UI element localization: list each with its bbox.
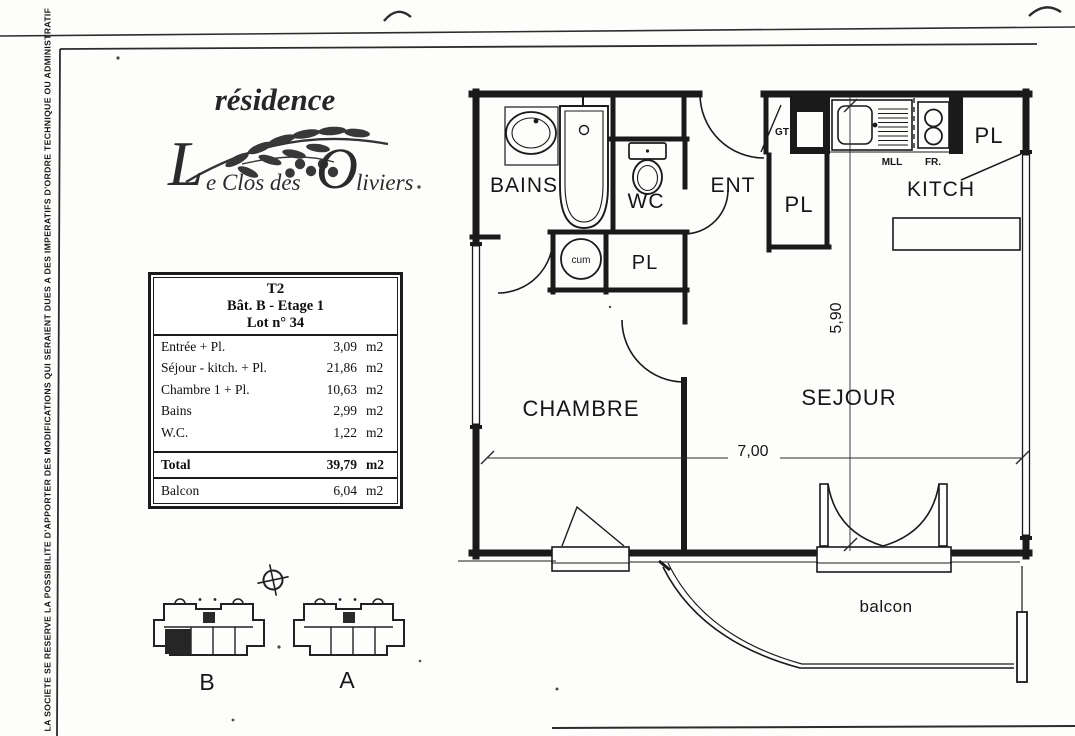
staple-mark-left [384,12,411,21]
staple-mark-right [1029,7,1061,16]
total-row: Total 39,79 m2 [154,451,397,479]
logo-initial-o: O [316,140,358,198]
bains-door-arc [498,238,553,293]
counter-bar [893,218,1020,250]
room-label-kitch: KITCH [907,178,975,201]
total-value: 39,79 [311,457,357,473]
cooktop-icon [918,102,949,148]
row-unit: m2 [366,425,390,441]
area-table: T2 Bât. B - Etage 1 Lot n° 34 Entrée + P… [148,272,403,509]
french-door-arc-left [828,484,883,546]
legal-side-note: LA SOCIETE SE RESERVE LA POSSIBILITE D'A… [43,46,58,732]
label-mll: MLL [882,157,903,168]
unit-type: T2 [154,281,397,298]
building-a-plan [294,598,404,655]
closet-label-pl-hall: PL [785,192,814,217]
row-value: 21,86 [311,360,357,376]
building-key-plans: B A [138,552,438,704]
dim-height-label: 5,90 [828,302,845,333]
row-label: Séjour - kitch. + Pl. [161,360,311,376]
floor-plan: 7,00 5,90 BAINS WC ENT KITCH CHAMBRE SEJ… [450,78,1050,690]
room-label-balcon: balcon [859,597,912,616]
building-b-label: B [199,669,214,695]
room-label-sejour: SEJOUR [801,385,896,410]
area-row: Séjour - kitch. + Pl. 21,86 m2 [154,358,397,380]
french-door-arc-right [883,484,939,546]
row-unit: m2 [366,403,390,419]
row-label: W.C. [161,425,311,441]
area-table-header: T2 Bât. B - Etage 1 Lot n° 34 [154,278,397,336]
toilet-icon [629,143,666,194]
balcony-label: Balcon [161,483,311,499]
closet-label-pl-kitchen: PL [975,123,1004,148]
frame-bottom-right [552,726,1075,728]
frame-top [60,44,1037,49]
kitchen-sink-icon [832,100,912,150]
scan-top-line [0,27,1075,36]
logo-initial-l: L [168,132,204,196]
label-cum: cum [572,255,591,266]
row-label: Bains [161,403,311,419]
row-value: 3,09 [311,339,357,355]
label-fr: FR. [925,157,941,168]
dim-width-label: 7,00 [737,443,768,460]
logo-name-end: liviers [356,170,414,196]
room-label-chambre: CHAMBRE [522,396,639,421]
highlighted-unit [165,629,191,654]
room-label-bains: BAINS [490,174,558,197]
building-b-plan [154,598,264,655]
total-unit: m2 [366,457,390,473]
french-door-leaf-right [939,484,947,546]
row-value: 1,22 [311,425,357,441]
row-unit: m2 [366,382,390,398]
entrance-door-arc [700,94,764,158]
row-unit: m2 [366,360,390,376]
balcony-row: Balcon 6,04 m2 [154,479,397,503]
row-value: 10,63 [311,382,357,398]
area-row: Entrée + Pl. 3,09 m2 [154,336,397,358]
room-label-wc: WC [628,190,665,213]
duct-inset [797,112,823,147]
compass-icon [254,561,292,599]
balcony-unit: m2 [366,483,390,499]
residence-logo-brand: résidence [200,82,350,118]
area-row: Bains 2,99 m2 [154,401,397,423]
building-floor: Bât. B - Etage 1 [154,298,397,315]
closet-door-diagonal-kitchen [961,154,1021,180]
window-walls [470,152,1032,538]
row-unit: m2 [366,339,390,355]
bath-sink-icon [505,107,558,165]
total-label: Total [161,457,311,473]
lot-number: Lot n° 34 [154,315,397,332]
area-row: W.C. 1,22 m2 [154,422,397,444]
scanned-floorplan-page: LA SOCIETE SE RESERVE LA POSSIBILITE D'A… [0,0,1075,736]
french-door-leaf-left [820,484,828,546]
logo-name-mid: e Clos des [206,170,301,196]
room-label-ent: ENT [711,174,756,197]
label-gt: GT [775,127,789,138]
chambre-window-leaf [562,507,624,546]
chambre-door-arc [622,320,684,382]
closet-label-pl-bath: PL [632,252,658,274]
building-a-label: A [339,667,355,693]
row-value: 2,99 [311,403,357,419]
bathtub-icon [560,96,608,228]
row-label: Chambre 1 + Pl. [161,382,311,398]
balcony-value: 6,04 [311,483,357,499]
balcony-railing [458,561,1027,682]
area-row: Chambre 1 + Pl. 10,63 m2 [154,379,397,401]
row-label: Entrée + Pl. [161,339,311,355]
